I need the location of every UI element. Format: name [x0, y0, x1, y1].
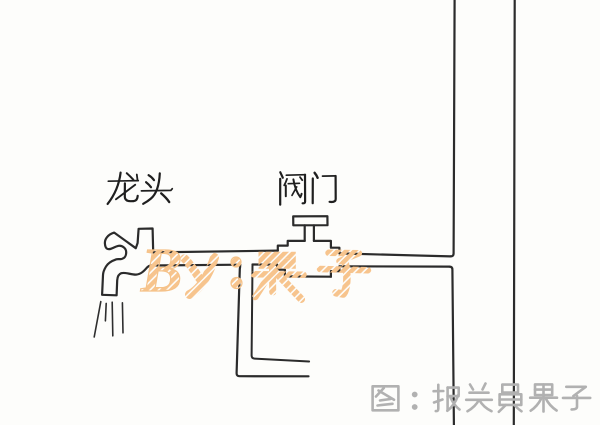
svg-text:B: B — [140, 237, 182, 305]
